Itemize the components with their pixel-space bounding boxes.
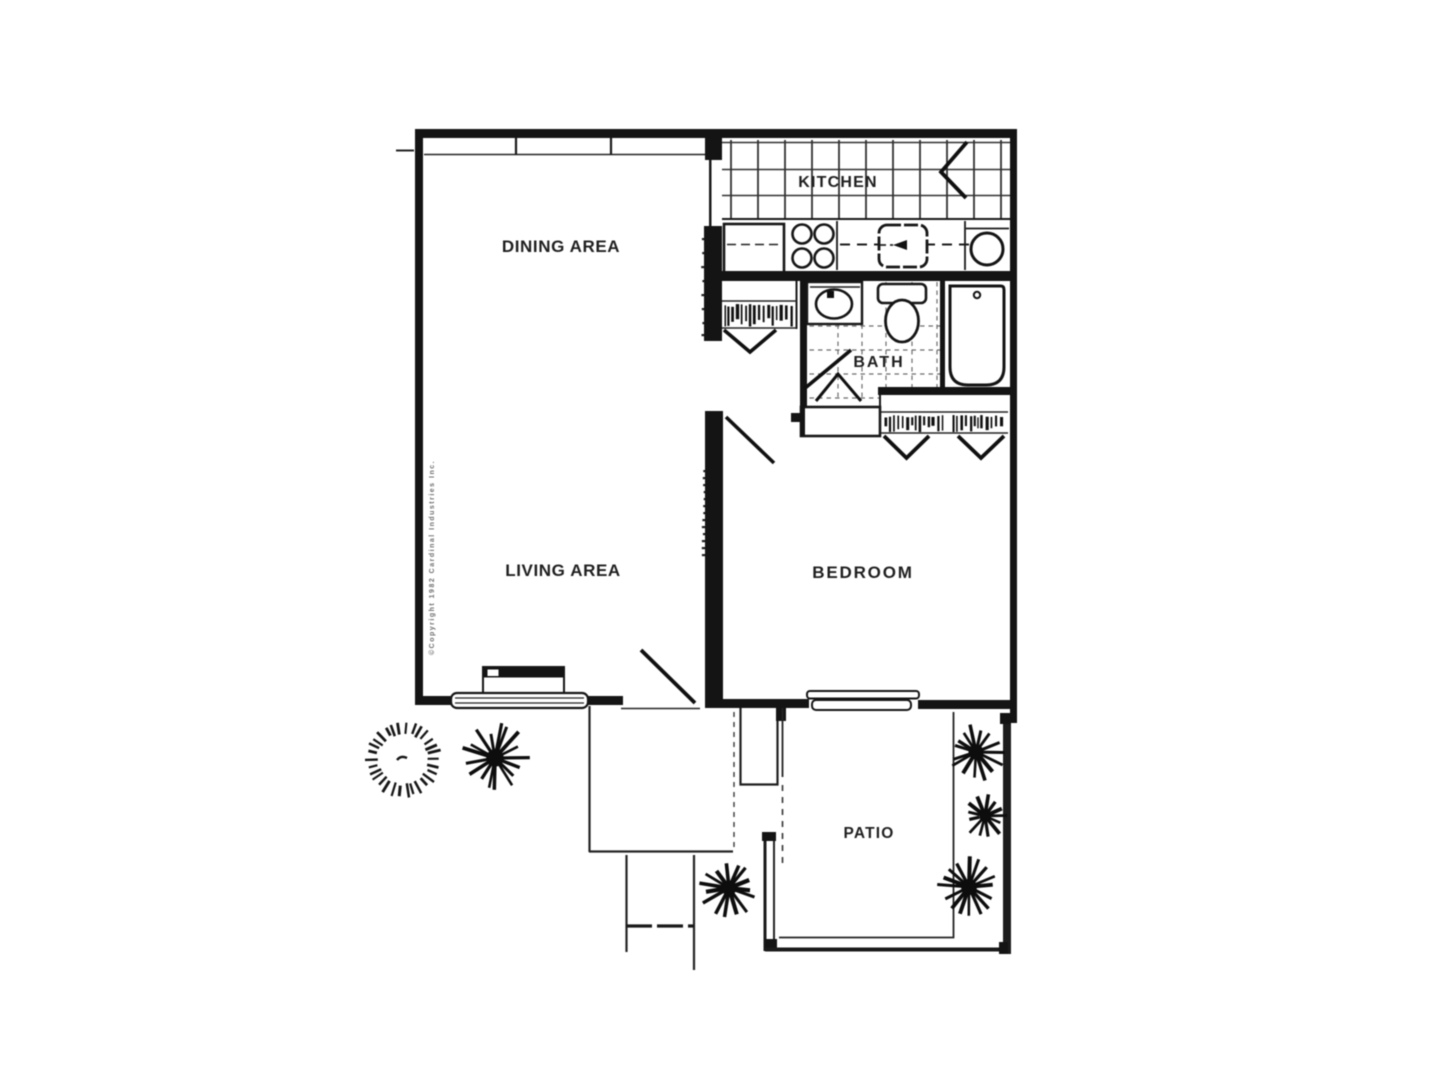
- svg-text:©Copyright 1982 Cardinal Indus: ©Copyright 1982 Cardinal Industries Inc.: [428, 460, 436, 655]
- svg-text:KITCHEN: KITCHEN: [798, 174, 878, 191]
- svg-text:BEDROOM: BEDROOM: [812, 563, 913, 582]
- svg-text:PATIO: PATIO: [843, 825, 894, 842]
- svg-text:LIVING AREA: LIVING AREA: [505, 561, 621, 580]
- svg-text:BATH: BATH: [853, 354, 904, 371]
- svg-text:DINING AREA: DINING AREA: [502, 237, 620, 256]
